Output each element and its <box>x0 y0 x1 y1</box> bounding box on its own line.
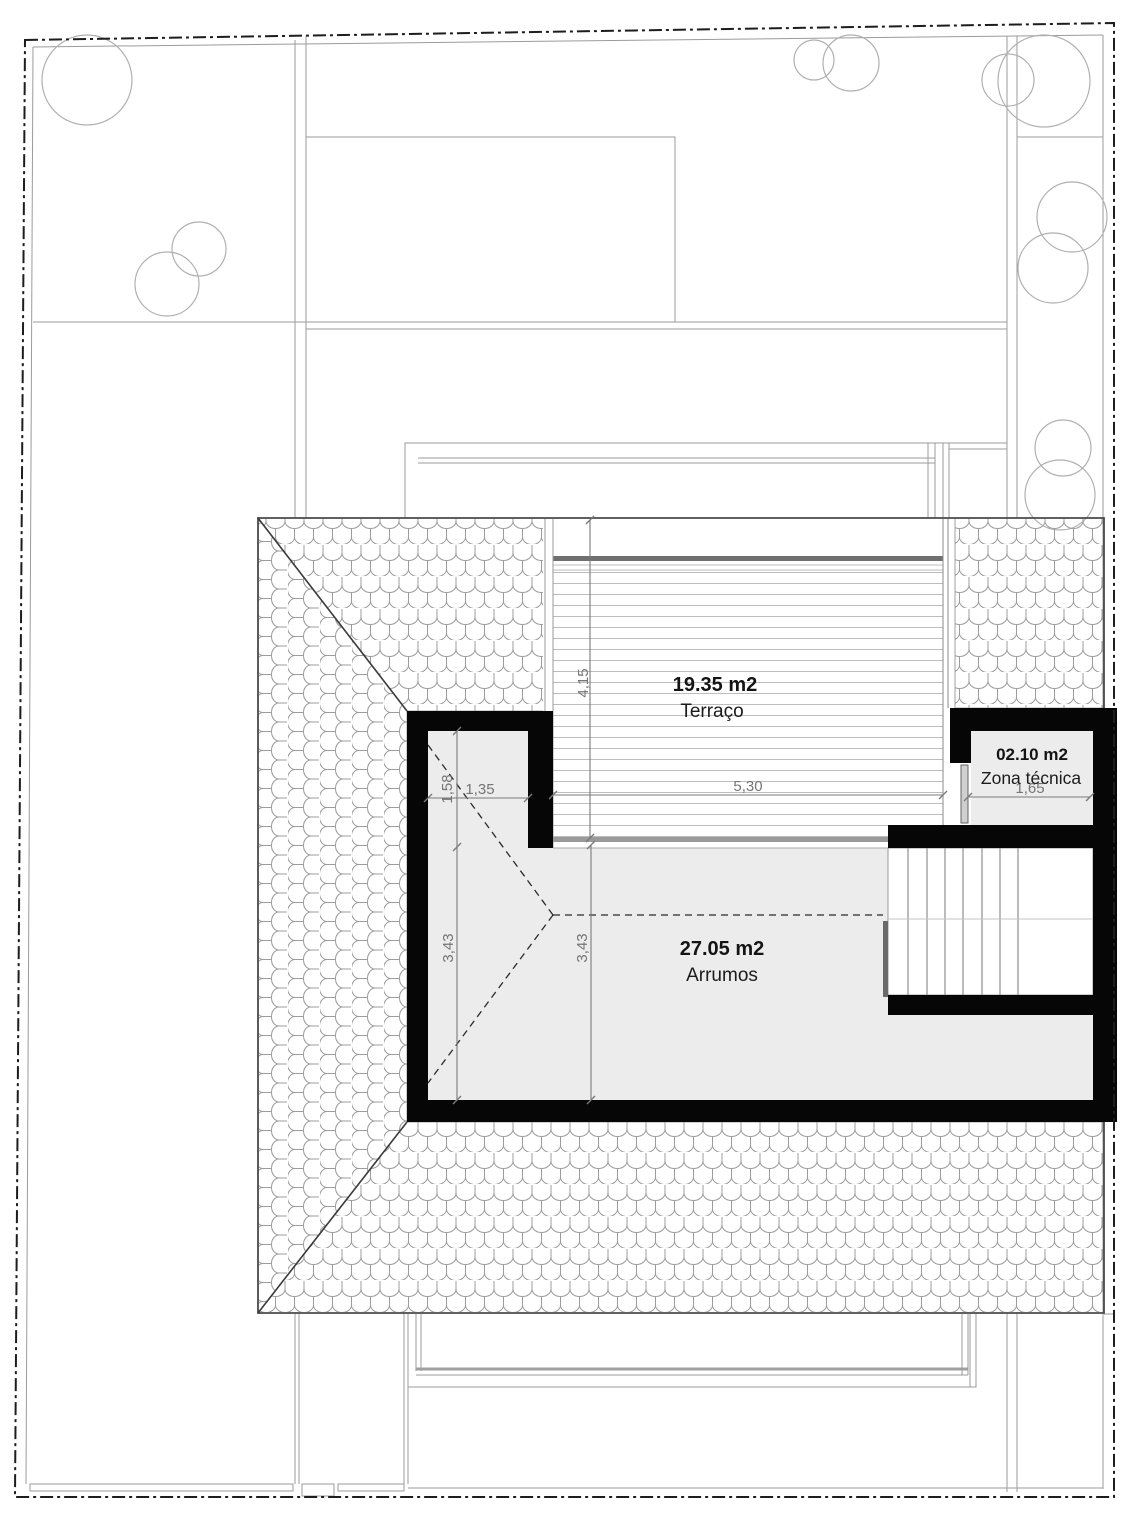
trees <box>42 35 1107 530</box>
tree-canopy <box>998 35 1090 127</box>
floor-plan-page: 4,15 5,30 1,35 1,58 3,43 3,43 1,65 19.35… <box>0 0 1125 1526</box>
stairs <box>883 848 1093 997</box>
terrace-area-label: 19.35 m2 <box>673 674 758 696</box>
dim-text-terrace-depth: 4,15 <box>575 668 592 697</box>
room-arrumos-main <box>428 848 888 1100</box>
wall <box>888 995 1093 1015</box>
terrace-deck-boards <box>553 562 943 838</box>
ground-floor-outline-top <box>405 443 949 518</box>
fence-bar <box>302 1484 334 1496</box>
tree-canopy <box>42 35 132 125</box>
inner-boundary-left <box>26 47 33 1484</box>
floor-plan-svg: 4,15 5,30 1,35 1,58 3,43 3,43 1,65 19.35… <box>0 0 1125 1526</box>
wall <box>407 711 428 1122</box>
tree-canopy <box>794 40 834 80</box>
tree-canopy <box>1018 233 1088 303</box>
terrace-edge-bar <box>553 556 943 561</box>
wall <box>888 825 1117 848</box>
site-rectangle <box>306 137 675 322</box>
arrumos-name-label: Arrumos <box>686 965 758 986</box>
tree-canopy <box>135 252 199 316</box>
tree-canopy <box>172 222 226 276</box>
arrumos-area-label: 27.05 m2 <box>680 938 765 960</box>
wall <box>407 1100 1117 1122</box>
tree-canopy <box>982 54 1034 106</box>
dim-text-alcove-depth: 1,58 <box>439 774 456 803</box>
dim-text-storage-depth-left: 3,43 <box>440 933 457 962</box>
fence-bar <box>338 1484 404 1491</box>
ground-floor-outline-bottom <box>408 1314 976 1387</box>
wall <box>407 711 553 731</box>
dim-text-alcove-width: 1,35 <box>465 781 494 798</box>
wall <box>950 708 971 763</box>
terrace-name-label: Terraço <box>680 701 743 722</box>
wall <box>528 731 553 848</box>
fence-bar <box>30 1484 293 1491</box>
roof-slope-top-right <box>955 518 1104 708</box>
zona-tecnica-area-label: 02.10 m2 <box>996 745 1068 764</box>
room-arrumos-east <box>888 1015 1093 1100</box>
door <box>950 763 971 825</box>
terrace-threshold <box>553 837 888 842</box>
dim-text-storage-depth-inner: 3,43 <box>574 933 591 962</box>
door-leaf <box>961 765 968 823</box>
stairs-handrail <box>883 921 888 997</box>
stairs-floor <box>888 848 1093 995</box>
tree-canopy <box>823 35 879 91</box>
dim-text-terrace-width: 5,30 <box>733 778 762 795</box>
tree-canopy <box>1037 182 1107 252</box>
wall <box>950 708 1117 731</box>
zona-tecnica-name-label: Zona técnica <box>981 768 1081 788</box>
